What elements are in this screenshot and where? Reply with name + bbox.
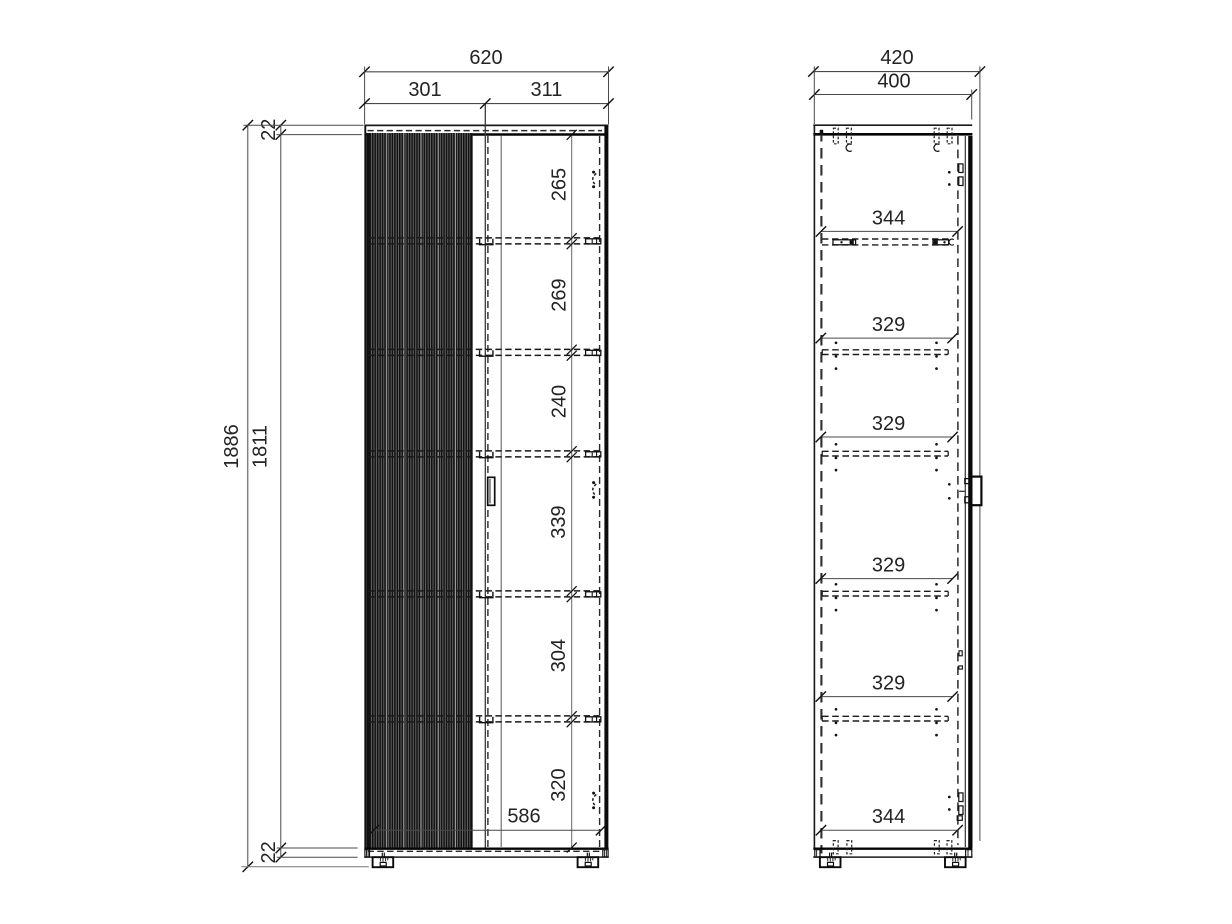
svg-text:22: 22 — [258, 119, 280, 141]
svg-text:240: 240 — [549, 385, 571, 418]
svg-text:620: 620 — [469, 47, 502, 69]
svg-text:22: 22 — [258, 841, 280, 863]
svg-text:329: 329 — [872, 673, 905, 695]
svg-text:339: 339 — [548, 505, 570, 538]
svg-text:304: 304 — [548, 639, 570, 672]
svg-text:301: 301 — [408, 79, 441, 101]
svg-text:329: 329 — [872, 555, 905, 577]
svg-text:311: 311 — [531, 79, 563, 101]
svg-text:344: 344 — [872, 207, 905, 229]
svg-text:344: 344 — [872, 806, 905, 828]
svg-text:1811: 1811 — [250, 425, 272, 468]
svg-text:420: 420 — [880, 47, 913, 69]
svg-text:320: 320 — [548, 768, 570, 801]
svg-text:265: 265 — [549, 168, 571, 201]
svg-text:329: 329 — [872, 314, 905, 336]
svg-text:400: 400 — [877, 70, 910, 92]
svg-text:329: 329 — [872, 413, 905, 435]
svg-text:586: 586 — [507, 806, 540, 828]
svg-text:269: 269 — [549, 278, 571, 311]
svg-text:1886: 1886 — [221, 424, 243, 469]
